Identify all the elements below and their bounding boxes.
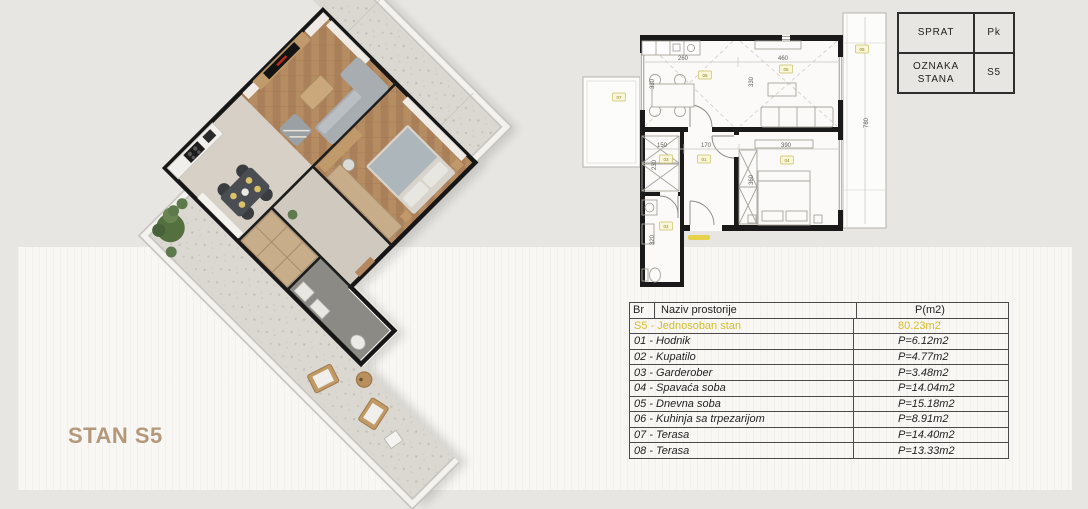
dimension-label: 390 [781,143,792,149]
room-number-badge: 06 [699,71,712,79]
room-area: P=8.91m2 [854,413,1008,425]
room-number-badge: 02 [660,222,673,230]
room-area: P=13.33m2 [854,445,1008,457]
summary-name: S5 - Jednosoban stan [630,319,854,334]
column-header-name: Naziv prostorije [655,303,857,318]
room-number-badge: 07 [613,93,626,101]
floor-label: SPRAT [899,14,975,52]
dimension-label: 330 [650,78,656,89]
dimension-label: 360 [749,174,755,185]
room-area: P=14.40m2 [854,429,1008,441]
room-area-table: Br Naziv prostorije P(m2) S5 - Jednosoba… [629,302,1009,459]
svg-text:05: 05 [783,67,789,72]
svg-text:07: 07 [616,95,622,100]
dimension-label: 150 [657,143,668,149]
room-number-badge: 04 [781,156,794,164]
terrace-left-2d [583,77,640,167]
room-number-badge: 03 [660,155,673,163]
dimension-label: 460 [778,56,789,62]
svg-text:06: 06 [702,73,708,78]
unit-info-table: SPRAT Pk OZNAKA STANA S5 [897,12,1015,94]
summary-area: 80.23m2 [854,320,1008,332]
summary-row: S5 - Jednosoban stan 80.23m2 [630,318,1008,334]
entrance-marker [688,235,710,240]
dimension-label: 170 [701,143,712,149]
svg-text:08: 08 [859,47,865,52]
room-name: 02 - Kupatilo [630,350,854,365]
floorplan-sheet: 260 460 330 330 150 170 390 230 360 320 … [0,0,1088,509]
plan-2d-drawing: 260 460 330 330 150 170 390 230 360 320 … [578,5,918,297]
table-row: 07 - Terasa P=14.40m2 [630,427,1008,443]
dimension-label: 230 [652,159,658,170]
room-area: P=4.77m2 [854,351,1008,363]
room-name: 08 - Terasa [630,443,854,458]
svg-text:02: 02 [663,224,669,229]
unit-info-row: SPRAT Pk [899,14,1013,52]
table-row: 02 - Kupatilo P=4.77m2 [630,349,1008,365]
table-row: 06 - Kuhinja sa trpezarijom P=8.91m2 [630,411,1008,427]
table-row: 01 - Hodnik P=6.12m2 [630,333,1008,349]
dimension-label: 780 [864,117,870,128]
unit-label: OZNAKA STANA [899,52,975,92]
room-number-badge: 05 [780,65,793,73]
table-header-row: Br Naziv prostorije P(m2) [630,303,1008,318]
column-header-area: P(m2) [857,304,1008,316]
dimension-label: 320 [650,234,656,245]
room-area: P=15.18m2 [854,398,1008,410]
room-name: 07 - Terasa [630,428,854,443]
room-name: 03 - Garderober [630,365,854,380]
apartment-title: STAN S5 [68,423,163,449]
table-row: 03 - Garderober P=3.48m2 [630,364,1008,380]
room-number-badge: 01 [698,155,711,163]
dimension-label: 330 [749,76,755,87]
dimension-label: 260 [678,56,689,62]
column-header-br: Br [630,303,655,318]
unit-info-row: OZNAKA STANA S5 [899,52,1013,92]
svg-text:01: 01 [701,157,707,162]
table-row: 08 - Terasa P=13.33m2 [630,442,1008,458]
room-area: P=3.48m2 [854,367,1008,379]
svg-text:04: 04 [784,158,790,163]
svg-text:03: 03 [663,157,669,162]
table-row: 05 - Dnevna soba P=15.18m2 [630,396,1008,412]
room-name: 04 - Spavaća soba [630,381,854,396]
floor-value: Pk [975,14,1013,52]
room-area: P=6.12m2 [854,335,1008,347]
room-name: 05 - Dnevna soba [630,397,854,412]
room-name: 01 - Hodnik [630,334,854,349]
room-number-badge: 08 [856,45,869,53]
unit-value: S5 [975,52,1013,92]
room-name: 06 - Kuhinja sa trpezarijom [630,412,854,427]
room-area: P=14.04m2 [854,382,1008,394]
table-row: 04 - Spavaća soba P=14.04m2 [630,380,1008,396]
